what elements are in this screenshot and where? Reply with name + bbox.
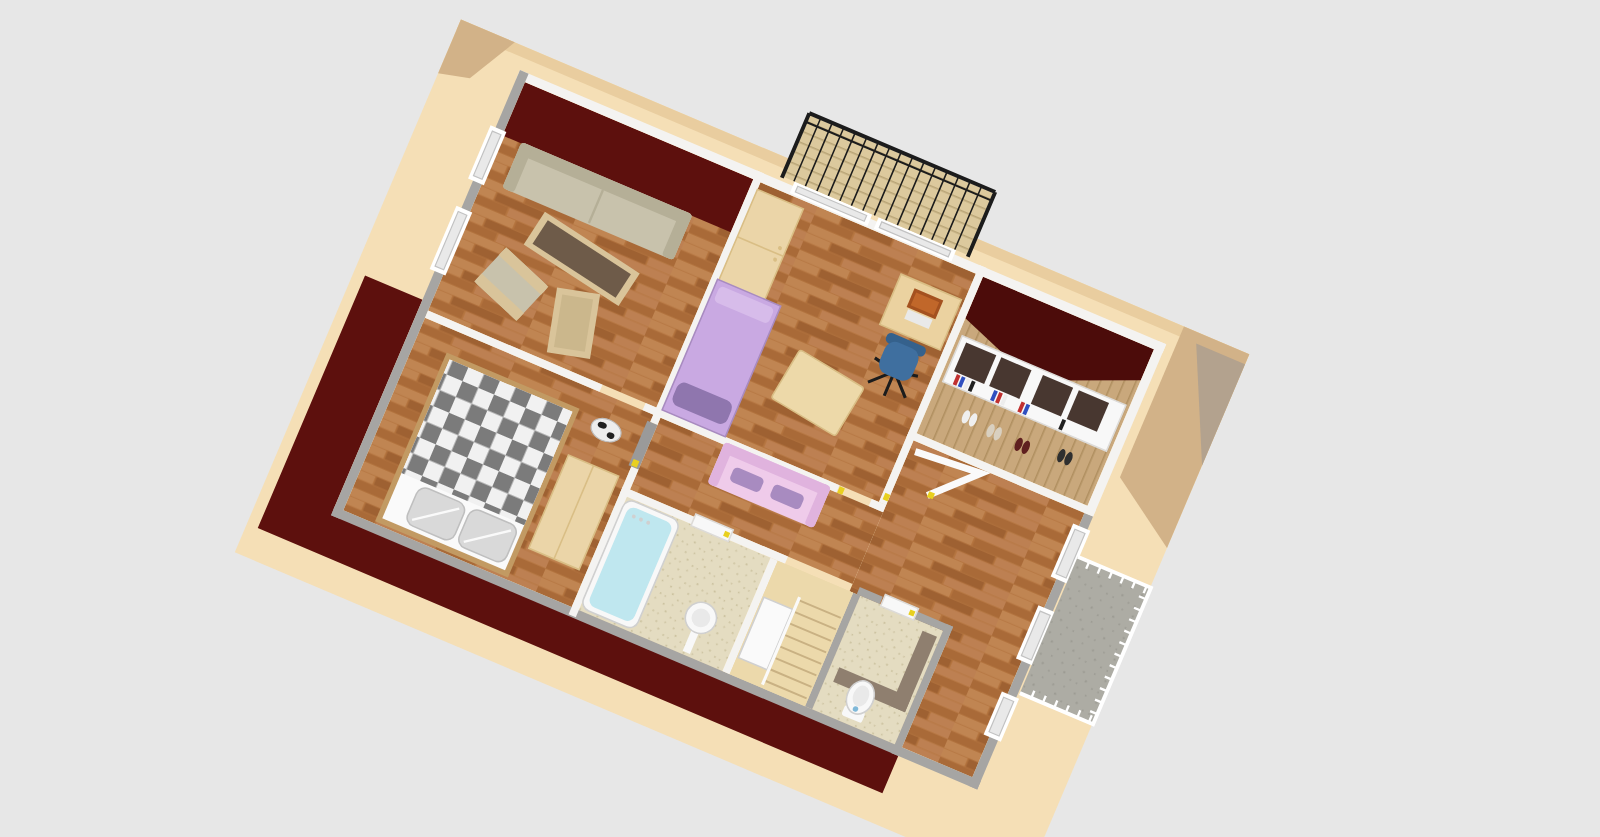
- floorplan-3d-viewport[interactable]: [0, 0, 1600, 837]
